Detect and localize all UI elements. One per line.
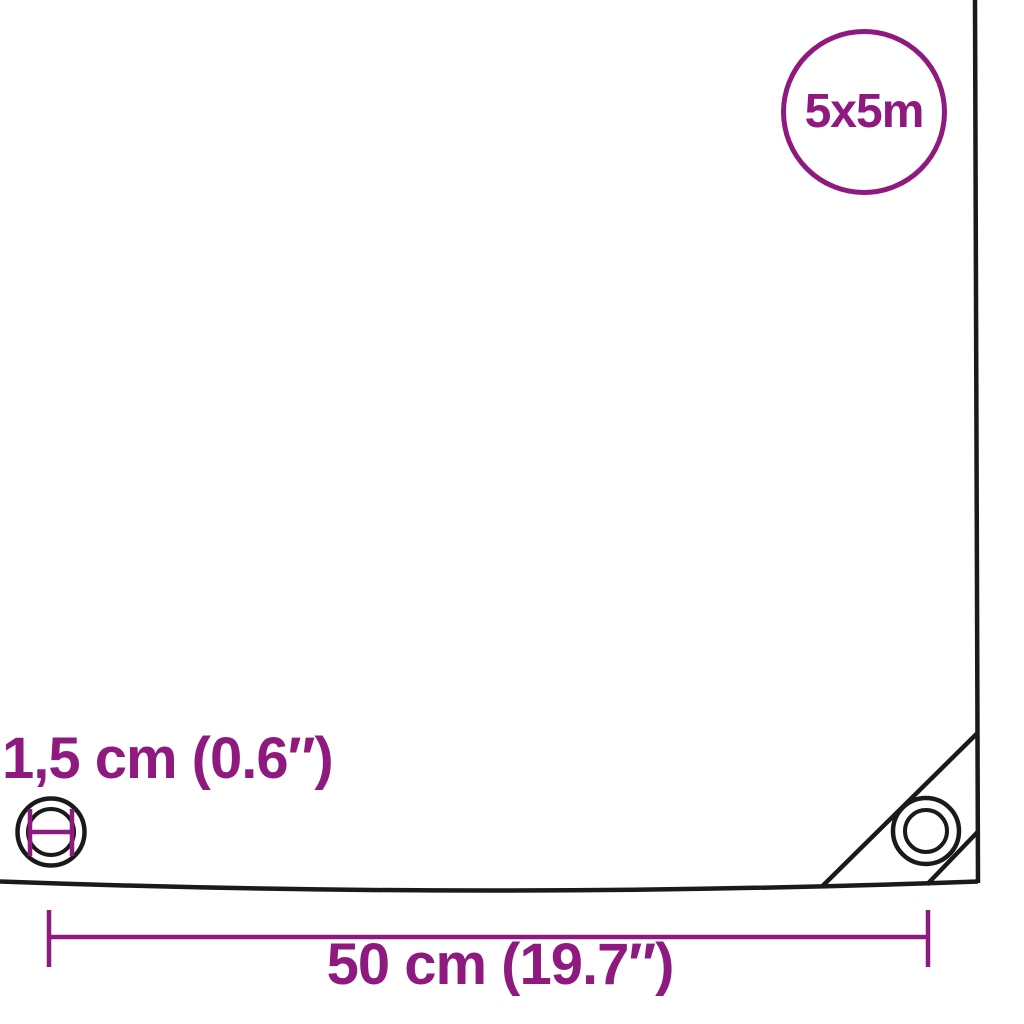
tarpaulin-dimension-diagram: 5x5m 1,5 cm (0.6″) 50 cm (19.7″)	[0, 0, 1024, 1024]
tarp-right-edge	[975, 0, 978, 883]
size-badge-label: 5x5m	[805, 88, 924, 136]
corner-grommet-outer-ring	[893, 798, 959, 864]
grommet-diameter-label: 1,5 cm (0.6″)	[2, 730, 333, 788]
grommet-spacing-label: 50 cm (19.7″)	[60, 936, 940, 994]
corner-seam-short	[927, 831, 979, 885]
size-badge: 5x5m	[781, 29, 947, 195]
tarp-bottom-edge	[0, 882, 978, 891]
corner-grommet-inner-ring	[905, 810, 947, 852]
